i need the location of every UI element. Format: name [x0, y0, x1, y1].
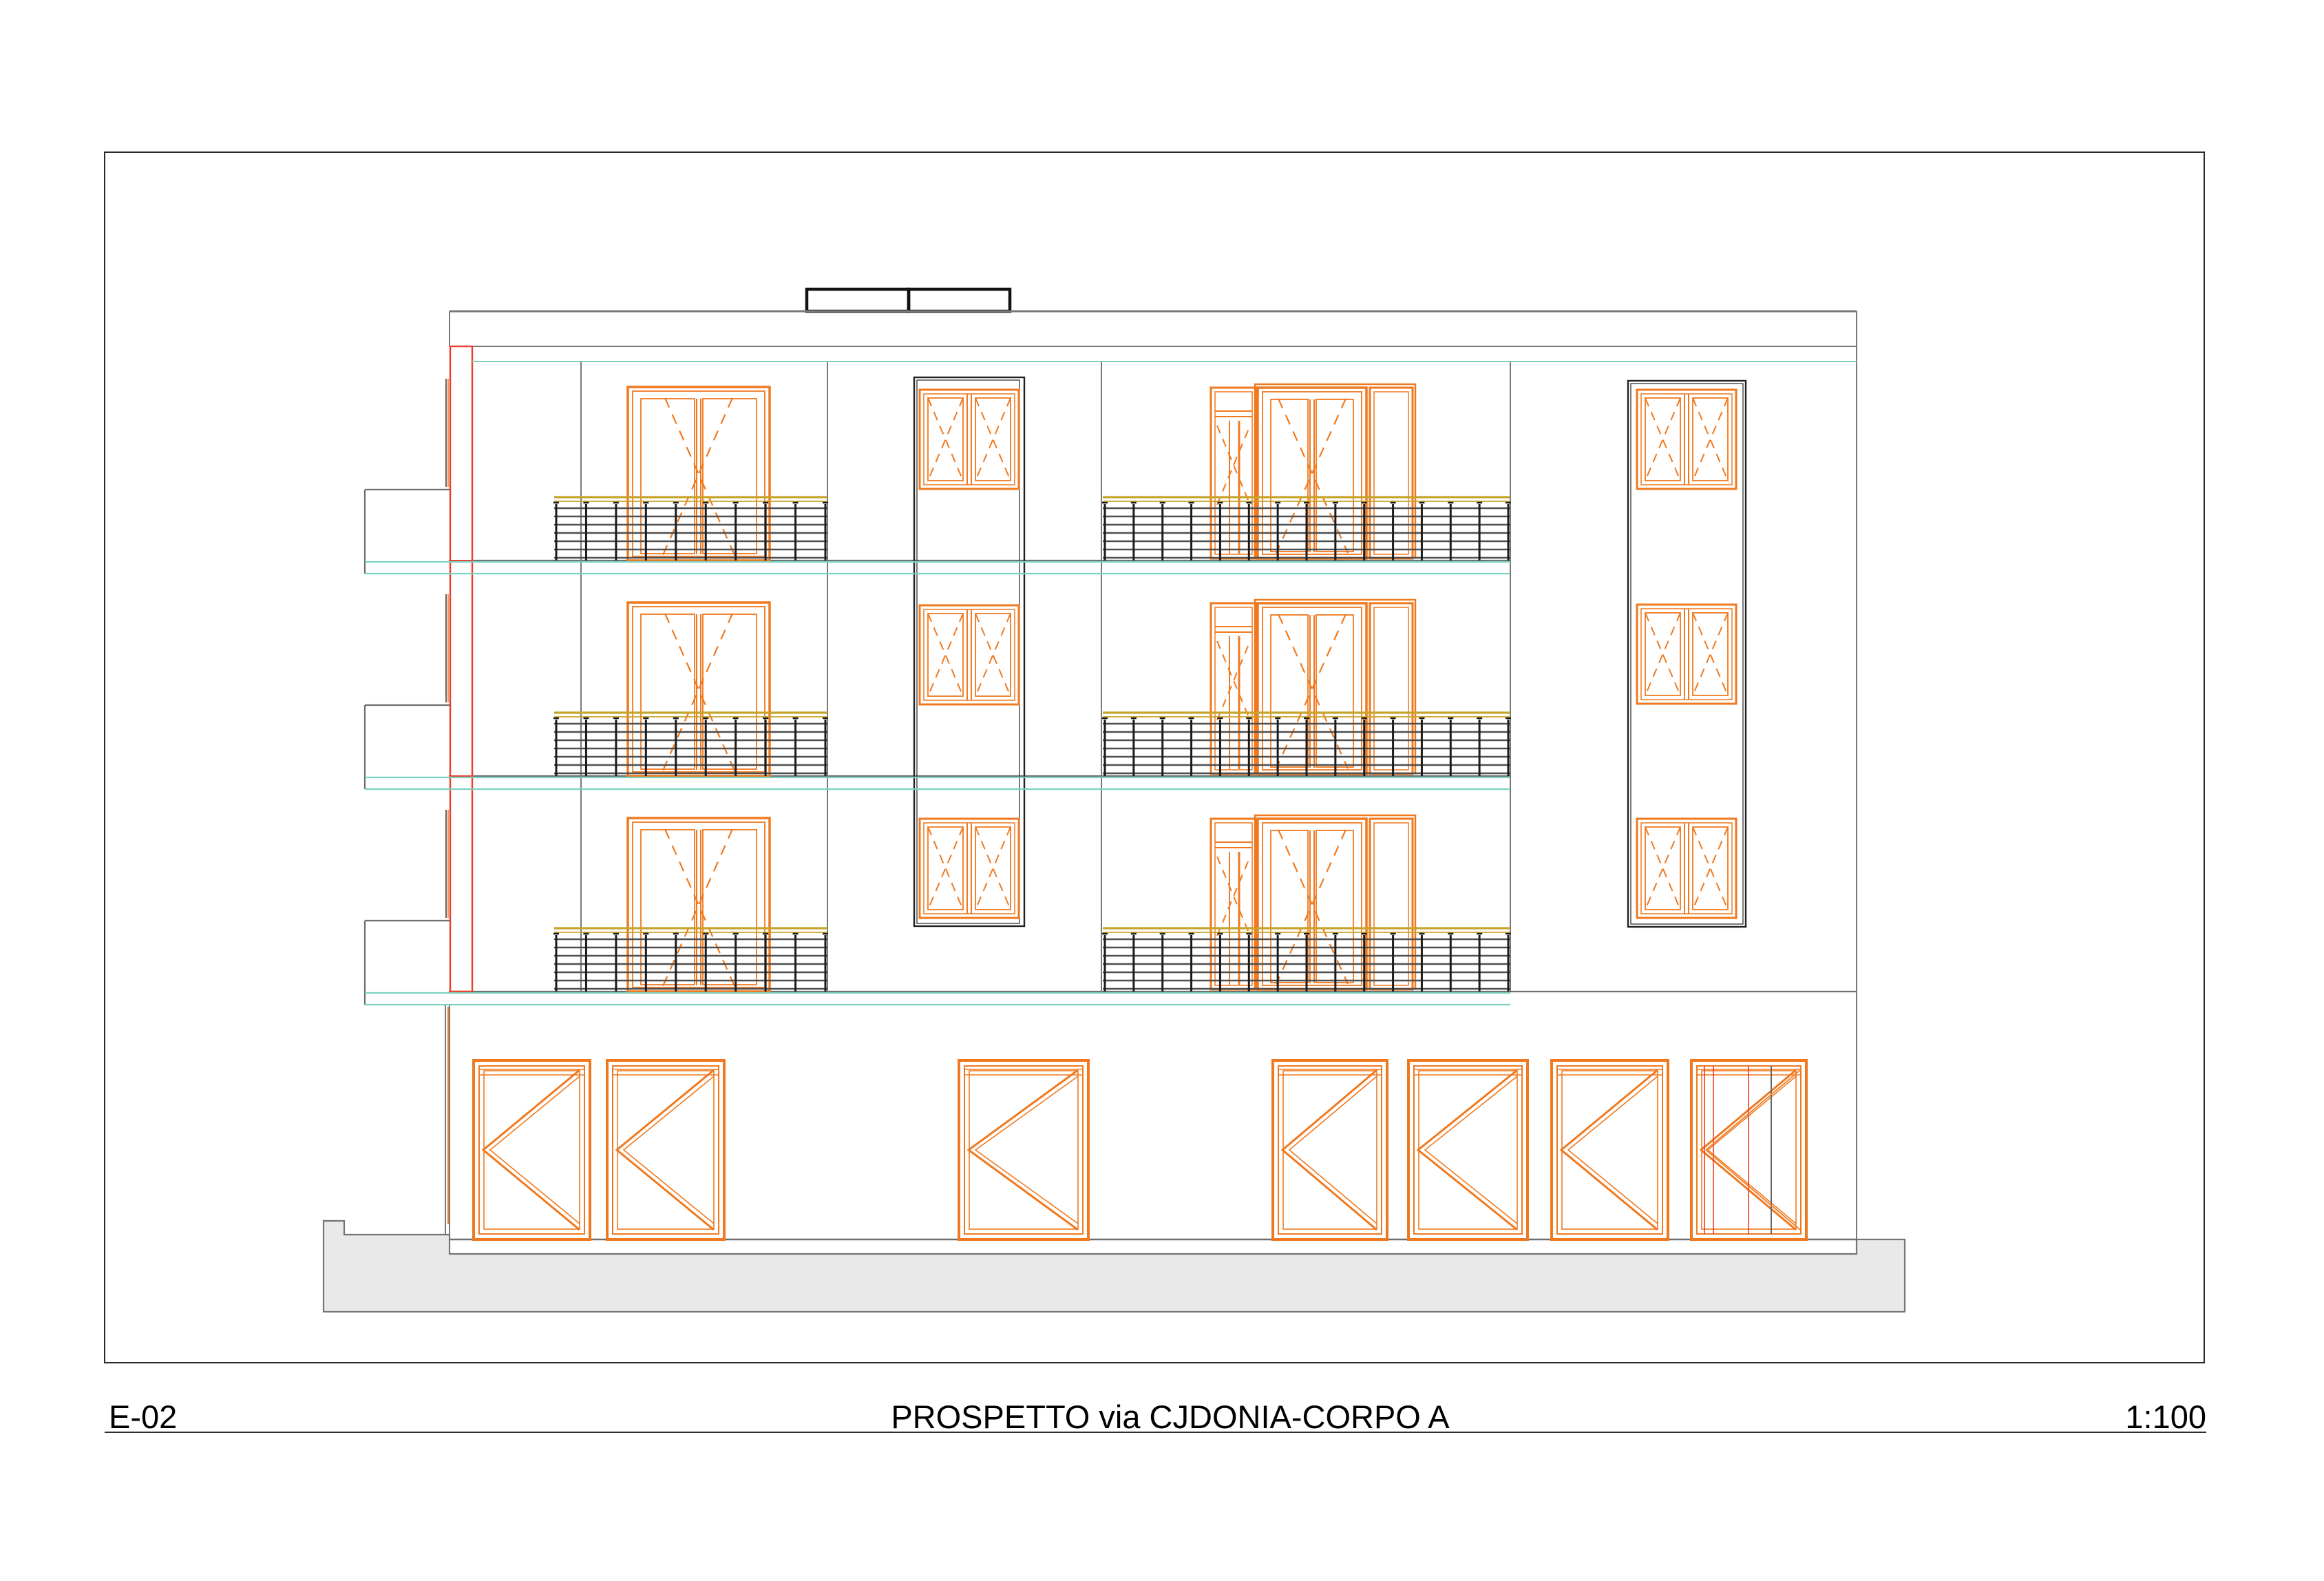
- drawing-title: PROSPETTO via CJDONIA-CORPO A: [891, 1401, 1449, 1433]
- red-downpipe: [449, 346, 472, 992]
- drawing-sheet: E-02 PROSPETTO via CJDONIA-CORPO A 1:100: [0, 0, 2324, 1581]
- drawing-scale: 1:100: [2125, 1401, 2206, 1433]
- elevation-drawing: [0, 0, 2324, 1581]
- title-underline: [105, 1432, 2206, 1433]
- drawing-number: E-02: [109, 1401, 177, 1433]
- windows-and-doors: [628, 377, 1746, 992]
- ground-floor-doors: [474, 1060, 1806, 1239]
- facade-joint-lines: [445, 362, 1510, 1239]
